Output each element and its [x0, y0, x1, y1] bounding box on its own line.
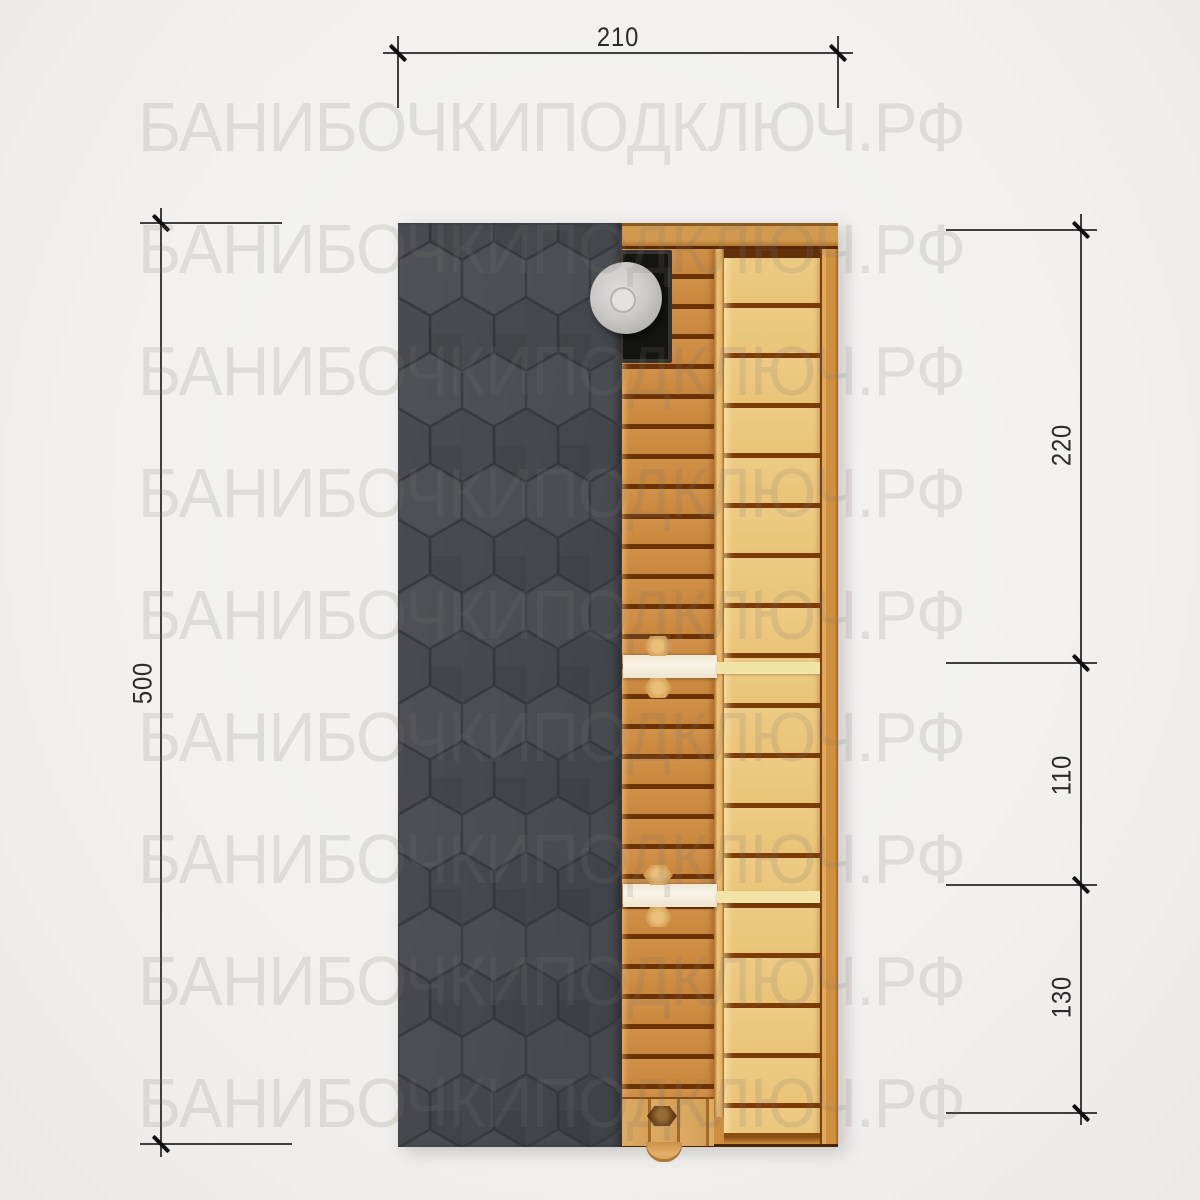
- partition-wall-1-bench-side: [717, 662, 820, 674]
- top-wall: [622, 223, 838, 249]
- partition-wall-2: [623, 884, 717, 907]
- exterior-door-pull-icon: [646, 1142, 682, 1162]
- dimension-label-total-length: 500: [128, 662, 159, 704]
- page-background: 210 500 220 110 130 БАНИБОЧКИПОДКЛЮЧ.РФ …: [0, 0, 1200, 1200]
- shingle-pattern-icon: [398, 223, 622, 1147]
- extension-line-right-1: [946, 229, 1097, 231]
- watermark-text: БАНИБОЧКИПОДКЛЮЧ.РФ: [138, 92, 965, 162]
- dimension-line-right: [1080, 214, 1082, 1125]
- extension-line-right-3: [946, 884, 1097, 886]
- chimney-cap-icon: [610, 287, 636, 313]
- roof-shingles: [398, 223, 622, 1147]
- sauna-interior: [622, 223, 838, 1147]
- partition-wall-1: [623, 655, 717, 678]
- extension-line-right-2: [946, 662, 1097, 664]
- right-wall: [820, 223, 838, 1144]
- side-bench: [724, 249, 820, 1142]
- dimension-line-left: [160, 208, 162, 1157]
- bench-bottom-frame: [724, 1133, 820, 1144]
- partition-wall-2-bench-side: [717, 891, 820, 903]
- bench-edge-board: [714, 249, 724, 1117]
- dimension-label-section-3: 130: [1047, 976, 1078, 1018]
- dimension-label-section-2: 110: [1047, 755, 1078, 796]
- sauna-plan-drawing: [398, 223, 838, 1147]
- extension-line-right-4: [946, 1112, 1097, 1114]
- dimension-label-section-1: 220: [1047, 424, 1078, 466]
- dimension-label-width: 210: [398, 22, 838, 53]
